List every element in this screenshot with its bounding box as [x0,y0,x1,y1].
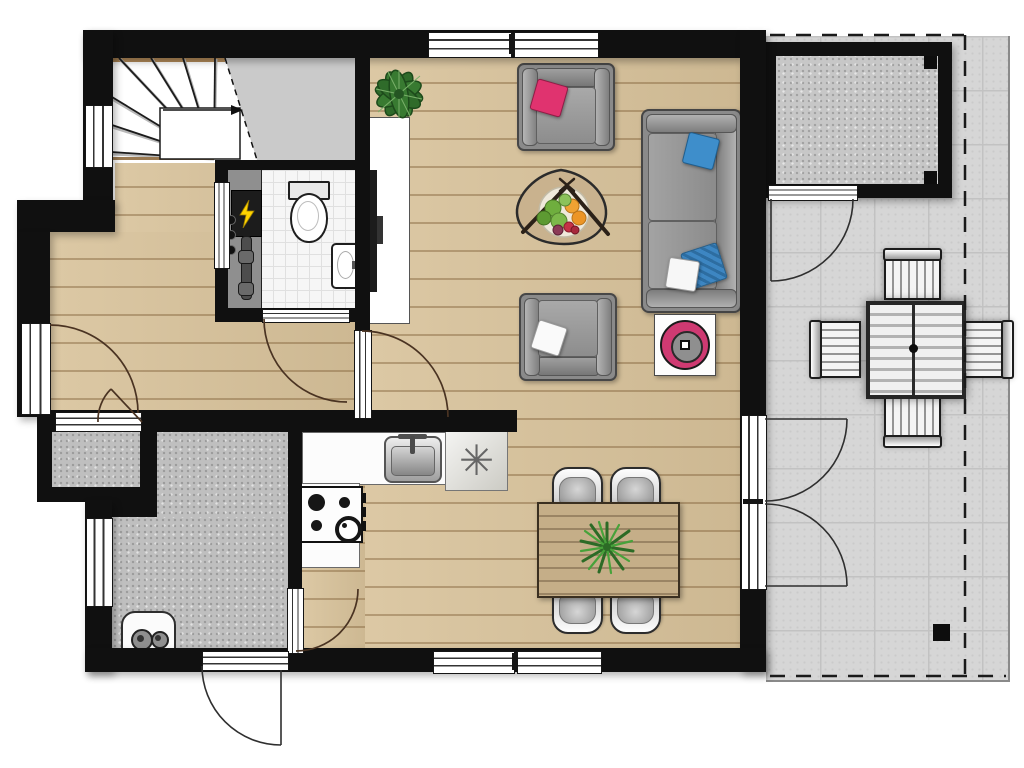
wall-top [83,30,740,58]
terrace-table [866,301,966,399]
sofa-arm [646,289,737,308]
chair-backrest [883,248,942,261]
fridge-freezer: ✳ [445,431,508,491]
shed-floor [776,56,938,184]
meter-pipe-joint [238,282,254,296]
floor-plan: ✳ [0,0,1024,768]
wall-utility-corner [112,500,157,517]
pink-ring-bowl [660,320,710,370]
terrace-post [933,624,950,641]
sofa-arm [646,114,737,133]
window-living-top [428,32,512,58]
lightning-bolt-icon [238,200,256,228]
burner [308,494,325,511]
front-door [21,323,51,415]
umbrella-hole [909,344,918,353]
tv-cabinet [363,117,410,324]
staircase-floor [112,58,258,163]
wall-toilet-top [215,160,357,170]
chair-backrest [883,435,942,448]
armchair-back [537,357,599,376]
window-living-top [514,32,599,58]
burner [335,516,362,543]
door-meter-cupboard [214,182,230,269]
burner [339,497,350,508]
toilet-bowl [290,193,328,243]
hob-knobs [363,493,366,503]
terrace-chair-east [962,321,1012,378]
wall-closet-right [140,410,157,502]
armchair-top [517,63,615,151]
electric-meter-panel [231,190,262,237]
burner-center [342,523,347,528]
terrace-chair-west [811,321,861,378]
storage-closet-floor [52,432,140,487]
armchair-bottom [519,293,617,381]
chair-backrest [809,320,822,379]
door-mullion [743,499,763,504]
door-utility-exterior [202,651,289,671]
chair-backrest [1001,320,1014,379]
shed-pillar-notch [924,56,937,69]
burner [311,520,322,531]
chair-seat [617,594,654,624]
hob-knobs [363,507,366,517]
wall-bottom [85,648,766,672]
window-kitchen [433,651,515,674]
faucet-spout [410,436,415,454]
side-table [654,314,716,376]
door-toilet [262,309,350,323]
armchair-arm [594,68,610,146]
bowl-dot [682,342,688,348]
window-mullion [509,34,515,54]
utility-exterior-door-swing [202,666,281,745]
door-living-room [354,330,372,419]
chair-seat [559,594,596,624]
window-utility [86,518,113,607]
armchair-arm [596,298,612,376]
terrace-chair-north [884,250,941,300]
white-cushion [665,257,700,292]
terrace-chair-south [884,396,941,446]
window-stairs [85,105,113,168]
window-kitchen [517,651,602,674]
wall-step [17,200,115,232]
kitchen-sink [384,436,442,483]
shed-pillar-notch [924,171,937,184]
sofa [641,109,742,313]
washer-dial-dot [155,635,161,641]
window-mullion [512,653,518,670]
utility-room-floor-upper [155,432,288,517]
meter-pipe-joint [238,250,254,264]
washer-dial-dot [137,635,144,642]
kitchen-hob [297,486,363,543]
freezer-asterisk-symbol: ✳ [459,440,494,482]
toilet-seat-line [297,201,319,231]
door-shed [768,185,858,201]
door-storage-closet [55,412,142,432]
tv-stand [377,216,383,244]
wall-living-hall [355,56,370,330]
dining-table [537,502,680,598]
hob-knobs [363,521,366,531]
door-utility-kitchen [287,588,304,654]
